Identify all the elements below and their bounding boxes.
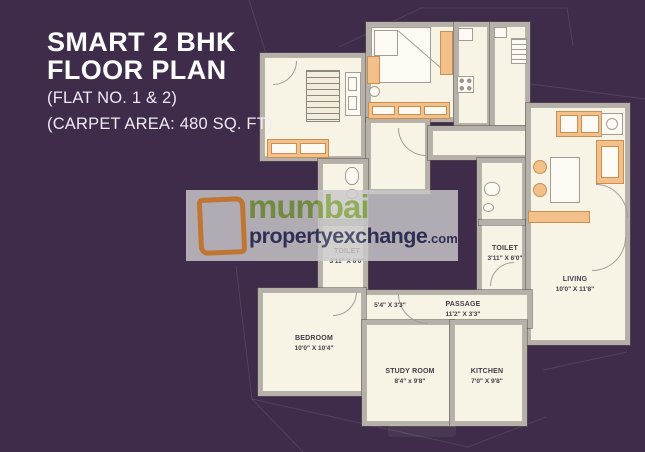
room-toilet-right — [477, 158, 527, 310]
bench-bed — [368, 102, 450, 119]
armchair — [596, 140, 624, 184]
room-name: STUDY ROOM — [368, 367, 452, 377]
room-name: LIVING — [537, 275, 613, 285]
dresser — [345, 72, 361, 116]
room-dims: 3'11" X 6'0" — [473, 254, 537, 263]
plan-title-line1: SMART 2 BHK — [47, 28, 273, 56]
label-bedroom: BEDROOM 10'0" X 10'4" — [274, 334, 354, 353]
label-passage: PASSAGE 11'2" X 3'3" — [426, 300, 500, 319]
room-name: TOILET — [473, 244, 537, 254]
wall-divider — [479, 220, 525, 225]
sofa — [267, 139, 329, 158]
label-toilet-right: TOILET 3'11" X 6'0" — [473, 244, 537, 263]
chair — [369, 86, 380, 97]
flat-number-subtitle: (FLAT NO. 1 & 2) — [47, 85, 273, 111]
watermark-brand-line: propertyexchange.com — [249, 224, 458, 249]
carpet-area-subtitle: (CARPET AREA: 480 SQ. FT) — [47, 111, 273, 137]
title-block: SMART 2 BHK FLOOR PLAN (FLAT NO. 1 & 2) … — [47, 28, 273, 137]
desk — [367, 56, 380, 84]
cabinet — [528, 211, 590, 223]
plan-title-line2: FLOOR PLAN — [47, 56, 273, 84]
dining-chair — [533, 160, 547, 174]
pillow — [374, 30, 398, 56]
room-dims: 11'2" X 3'3" — [426, 310, 500, 319]
dining-table — [550, 157, 580, 203]
room-name: BEDROOM — [274, 334, 354, 344]
wardrobe — [440, 31, 453, 75]
washing-machine-icon — [601, 113, 623, 135]
bed-ribbed — [306, 70, 340, 122]
floor-plan-image: TOILET 3'11" X 6'0" TOILET 3'11" X 6'0" … — [0, 0, 645, 452]
watermark-brand-text: propertyexchange — [249, 224, 427, 248]
room-dims: 10'0" X 10'4" — [274, 344, 354, 353]
watermark-tld-text: .com — [427, 231, 457, 246]
wc-icon — [345, 167, 359, 185]
watermark-city-text: mumbai — [248, 188, 369, 226]
room-corridor — [428, 126, 530, 160]
label-living: LIVING 10'0" X 11'8" — [537, 275, 613, 294]
dish-rack — [511, 38, 527, 64]
washbasin-icon — [483, 203, 494, 212]
room-name: PASSAGE — [426, 300, 500, 310]
dining-chair — [533, 183, 547, 197]
wc-icon — [484, 182, 500, 196]
sink-icon — [494, 27, 507, 38]
brand-logo-icon — [197, 196, 247, 256]
room-name: KITCHEN — [449, 367, 525, 377]
ghost-watermark — [388, 424, 456, 437]
room-dims: 5'4" X 3'3" — [358, 301, 422, 310]
stove-icon — [457, 76, 474, 93]
dresser-drawer — [348, 96, 357, 110]
bed — [371, 27, 431, 83]
room-dims: 8'4" x 9'8" — [368, 377, 452, 386]
sofa — [556, 111, 602, 137]
dresser-drawer — [348, 77, 357, 91]
label-passage-small: 5'4" X 3'3" — [358, 301, 422, 310]
room-dims: 10'0" X 11'8" — [537, 285, 613, 294]
room-dims: 7'0" X 9'8" — [449, 377, 525, 386]
label-kitchen: KITCHEN 7'0" X 9'8" — [449, 367, 525, 386]
sink-icon — [458, 28, 473, 41]
label-study-room: STUDY ROOM 8'4" x 9'8" — [368, 367, 452, 386]
watermark-banner: mumbai propertyexchange.com — [186, 190, 458, 261]
